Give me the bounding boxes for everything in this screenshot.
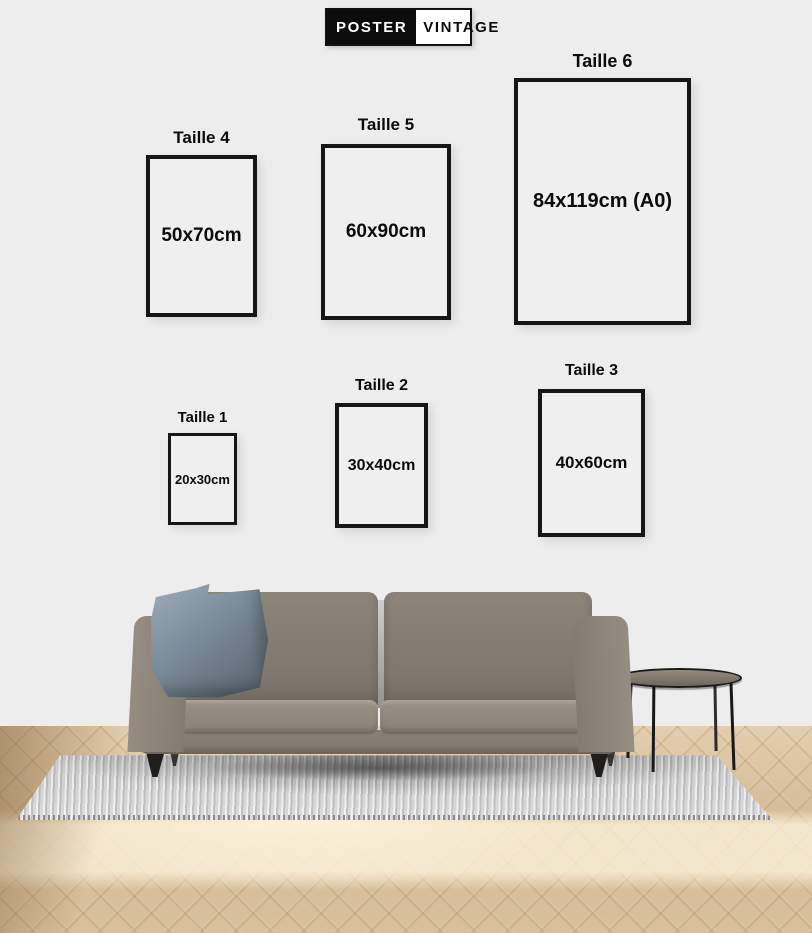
sofa-cushion-gap <box>378 600 384 708</box>
size-dimensions-taille-4: 50x70cm <box>161 225 241 247</box>
poster-size-guide-scene: POSTER VINTAGE Taille 4 50x70cm Taille 5… <box>0 0 812 933</box>
frame-label-taille-5: Taille 5 <box>321 115 451 135</box>
sofa-seat-cushion-right <box>380 700 598 734</box>
sofa-back-cushion-right <box>384 592 592 710</box>
frame-label-taille-2: Taille 2 <box>335 377 428 395</box>
size-dimensions-taille-5: 60x90cm <box>346 221 426 243</box>
frame-label-taille-3: Taille 3 <box>538 362 645 380</box>
size-frame-taille-6: 84x119cm (A0) <box>514 78 691 325</box>
frame-label-taille-6: Taille 6 <box>514 51 691 72</box>
size-dimensions-taille-3: 40x60cm <box>556 453 628 473</box>
size-frame-taille-4: 50x70cm <box>146 155 257 317</box>
size-dimensions-taille-2: 30x40cm <box>348 457 416 475</box>
size-frame-taille-3: 40x60cm <box>538 389 645 537</box>
size-dimensions-taille-1: 20x30cm <box>175 472 230 487</box>
brand-logo: POSTER VINTAGE <box>325 8 472 46</box>
sofa-armrest-right <box>571 616 634 752</box>
frame-label-taille-1: Taille 1 <box>168 409 237 426</box>
side-table-top <box>616 668 742 688</box>
sofa-seat-cushion-left <box>160 700 378 734</box>
sofa-shadow <box>138 750 620 786</box>
size-frame-taille-5: 60x90cm <box>321 144 451 320</box>
size-frame-taille-1: 20x30cm <box>168 433 237 525</box>
side-table-leg <box>713 681 717 751</box>
brand-logo-left-text: POSTER <box>327 10 416 44</box>
size-dimensions-taille-6: 84x119cm (A0) <box>533 190 672 213</box>
size-frame-taille-2: 30x40cm <box>335 403 428 528</box>
frame-label-taille-4: Taille 4 <box>146 128 257 148</box>
throw-pillow <box>147 581 271 701</box>
brand-logo-right-text: VINTAGE <box>416 10 507 44</box>
